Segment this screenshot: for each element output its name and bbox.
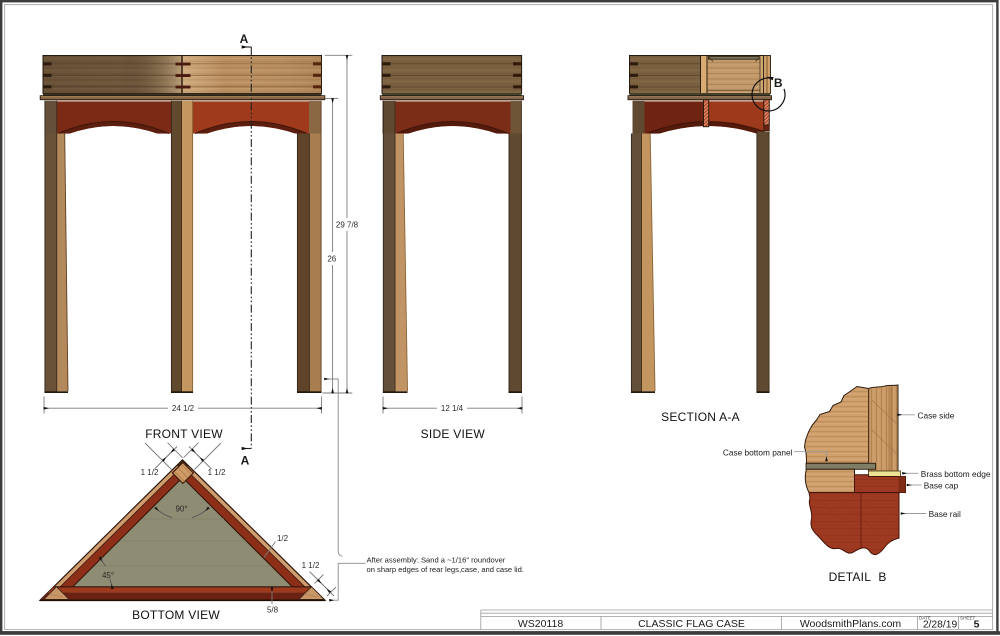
svg-text:Case side: Case side [918, 411, 955, 421]
svg-text:1/2: 1/2 [277, 534, 289, 543]
svg-text:FRONT VIEW: FRONT VIEW [145, 427, 223, 441]
svg-text:A: A [241, 454, 250, 468]
svg-text:A: A [240, 32, 249, 46]
svg-text:2/28/19: 2/28/19 [923, 619, 958, 630]
svg-text:DETAIL B: DETAIL B [829, 570, 887, 584]
svg-text:WS20118: WS20118 [518, 618, 563, 630]
svg-text:SIDE VIEW: SIDE VIEW [421, 427, 486, 441]
svg-text:After assembly: Sand a ~1/16": After assembly: Sand a ~1/16" roundover [367, 555, 506, 564]
svg-text:29 7/8: 29 7/8 [336, 220, 359, 229]
svg-text:26: 26 [327, 254, 336, 263]
svg-text:WoodsmithPlans.com: WoodsmithPlans.com [800, 618, 902, 630]
svg-text:Case bottom panel: Case bottom panel [723, 447, 793, 457]
svg-text:BOTTOM VIEW: BOTTOM VIEW [132, 608, 220, 622]
svg-text:24 1/2: 24 1/2 [172, 404, 195, 413]
svg-text:Brass bottom edge: Brass bottom edge [921, 469, 991, 479]
svg-text:1 1/2: 1 1/2 [302, 561, 320, 570]
svg-text:B: B [774, 76, 783, 90]
svg-text:Base rail: Base rail [929, 509, 961, 519]
svg-text:45°: 45° [102, 571, 114, 580]
svg-text:Base cap: Base cap [924, 481, 959, 491]
svg-text:5/8: 5/8 [267, 606, 279, 615]
svg-text:5: 5 [974, 618, 980, 630]
svg-text:1 1/2: 1 1/2 [141, 468, 159, 477]
svg-text:90°: 90° [175, 505, 187, 514]
svg-text:on sharp edges of rear legs,ca: on sharp edges of rear legs,case, and ca… [367, 565, 524, 574]
svg-text:SECTION A-A: SECTION A-A [661, 410, 740, 424]
svg-text:CLASSIC FLAG CASE: CLASSIC FLAG CASE [638, 618, 745, 630]
svg-text:12 1/4: 12 1/4 [441, 404, 464, 413]
svg-text:1 1/2: 1 1/2 [208, 468, 226, 477]
